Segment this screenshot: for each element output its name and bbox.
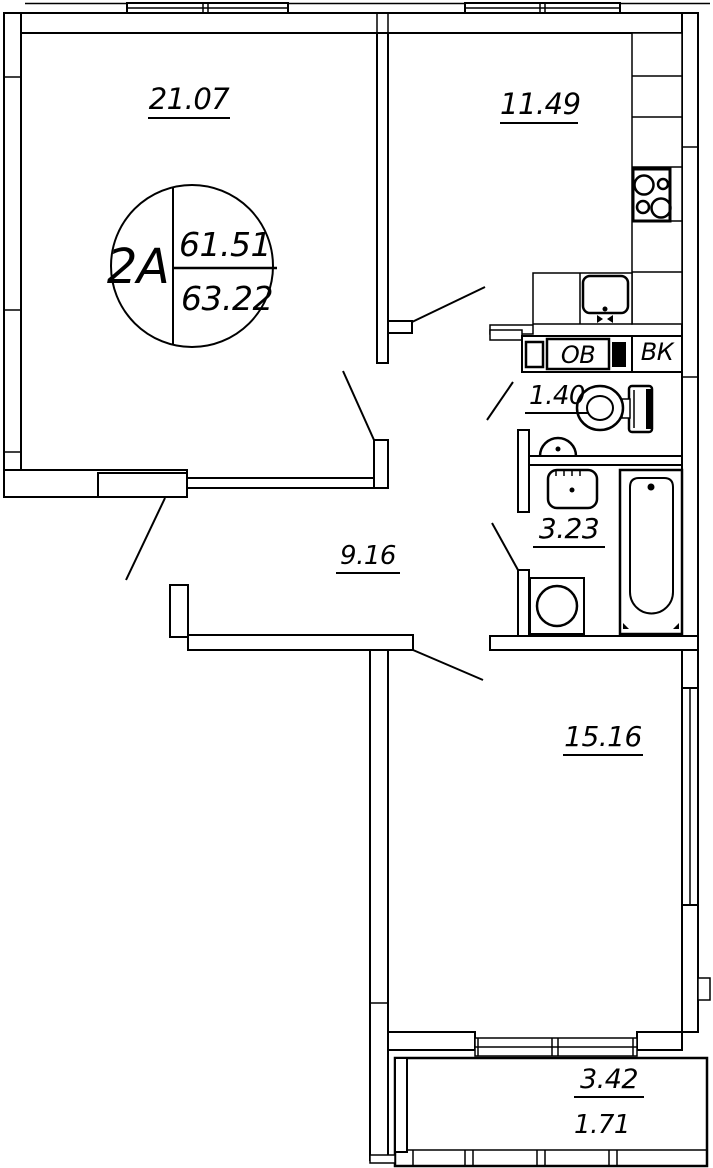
window-icon-living bbox=[127, 3, 288, 13]
bathtub-icon bbox=[620, 470, 682, 634]
bathroom-door-icon bbox=[492, 523, 518, 570]
entry-door-icon bbox=[98, 473, 187, 580]
floor-plan: 21.07 11.49 1.40 3.23 9.16 15.16 3.42 1.… bbox=[0, 0, 713, 1168]
window-icon-kitchen bbox=[465, 3, 620, 13]
room-label-bathroom: 3.23 bbox=[533, 515, 605, 548]
stove-icon bbox=[633, 169, 671, 221]
interior-walls bbox=[4, 33, 698, 1160]
window-icon-bedroom-east bbox=[682, 688, 698, 905]
bedroom-door-icon bbox=[413, 650, 483, 680]
room-label-toilet: 1.40 bbox=[525, 383, 589, 414]
room-label-bedroom: 15.16 bbox=[563, 723, 643, 756]
wc-door-icon bbox=[487, 382, 513, 420]
room-label-living: 21.07 bbox=[148, 85, 230, 119]
stamp-total-area-label: 63.22 bbox=[177, 282, 277, 315]
balcony-reduced-area-label: 1.71 bbox=[570, 1112, 634, 1138]
heating-shaft-label: ОВ bbox=[550, 343, 606, 367]
living-door-icon bbox=[343, 371, 374, 440]
window-icon-balcony-door bbox=[475, 1038, 637, 1056]
plan-linework bbox=[0, 0, 713, 1168]
plumbing-shaft-label: ВК bbox=[634, 340, 680, 364]
stamp-living-area-label: 61.51 bbox=[177, 228, 273, 261]
stamp-unit-label: 2A bbox=[105, 243, 171, 291]
wc-washbasin-icon bbox=[540, 438, 576, 456]
room-label-hallway: 9.16 bbox=[336, 543, 400, 574]
bathroom-washbasin-icon bbox=[548, 470, 597, 508]
room-label-kitchen: 11.49 bbox=[500, 90, 578, 124]
balcony-area-label: 3.42 bbox=[574, 1066, 644, 1098]
washing-machine-icon bbox=[530, 578, 584, 634]
kitchen-door-icon bbox=[412, 287, 485, 322]
